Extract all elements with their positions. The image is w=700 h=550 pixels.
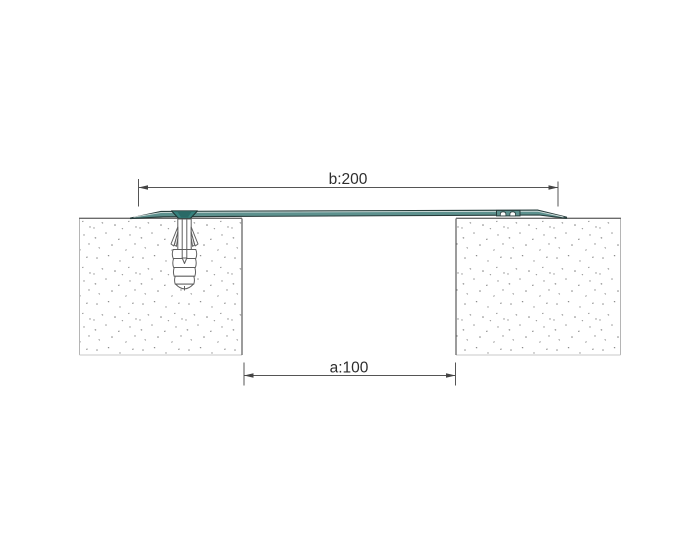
expansion-joint-diagram: b:200 a:100 xyxy=(0,0,700,550)
dimension-a-arrow-left xyxy=(244,373,254,378)
plug-rib-3 xyxy=(173,268,195,277)
clip-notch-right xyxy=(510,212,516,216)
concrete-block-left xyxy=(80,219,243,356)
clip-notch-left xyxy=(500,212,506,216)
dimension-a-label: a:100 xyxy=(330,360,369,377)
dimension-b-label: b:200 xyxy=(329,171,368,188)
dimension-b-arrow-left xyxy=(139,185,149,190)
concrete-left-texture xyxy=(80,219,243,356)
drawing-canvas: b:200 a:100 xyxy=(0,0,700,550)
dimension-b-arrow-right xyxy=(549,185,559,190)
plug-rib-1 xyxy=(172,250,196,259)
dimension-a-arrow-right xyxy=(446,373,456,378)
plug-body xyxy=(178,219,191,250)
concrete-block-right xyxy=(456,219,621,356)
clip-notches xyxy=(497,210,521,216)
plug-rib-4 xyxy=(175,276,195,284)
concrete-right-texture xyxy=(456,219,621,356)
